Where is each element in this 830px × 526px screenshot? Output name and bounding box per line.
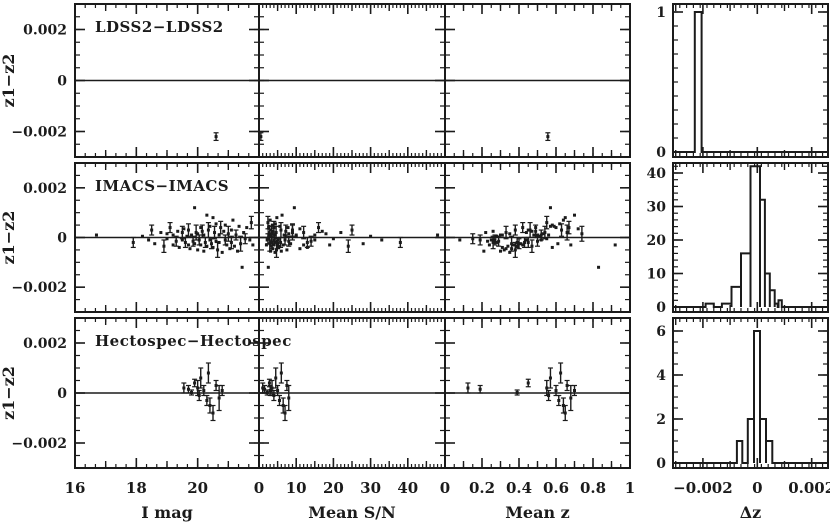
x-tick-label: 40 <box>397 479 418 497</box>
hist-y-tick-label: 30 <box>647 200 667 216</box>
data-point <box>250 221 253 224</box>
x-tick-label: 0.6 <box>543 479 569 497</box>
data-point <box>543 231 546 234</box>
data-point <box>466 387 469 390</box>
data-point <box>567 226 570 229</box>
data-point <box>521 226 524 229</box>
data-point <box>302 231 305 234</box>
hist-y-tick-label: 1 <box>656 5 666 21</box>
x-tick-label: 16 <box>65 479 86 497</box>
data-point <box>328 243 331 246</box>
data-point <box>189 247 192 250</box>
hist-y-tick-label: 4 <box>656 368 666 384</box>
data-point <box>380 238 383 241</box>
data-point <box>166 237 169 240</box>
data-point <box>313 238 316 241</box>
data-point <box>233 245 236 248</box>
data-point <box>219 226 222 229</box>
data-point <box>597 266 600 269</box>
data-point <box>566 384 569 387</box>
data-point <box>557 399 560 402</box>
data-point <box>534 226 537 229</box>
redshift-repeatability-figure: 0.0020−0.002z1−z2LDSS2−LDSS20.0020−0.002… <box>0 0 830 526</box>
data-point <box>182 387 185 390</box>
data-point <box>569 243 572 246</box>
data-point <box>569 397 572 400</box>
data-point <box>488 243 491 246</box>
data-point <box>332 237 335 240</box>
y-tick-label: −0.002 <box>11 280 67 296</box>
data-point <box>479 388 482 391</box>
hist-y-tick-label: 0 <box>656 300 666 316</box>
data-point <box>549 225 552 228</box>
y-tick-label: 0 <box>57 386 67 402</box>
data-point <box>205 245 208 248</box>
data-point <box>215 222 218 225</box>
x-axis-title: Mean S/N <box>308 503 395 522</box>
x-tick-label: 10 <box>286 479 307 497</box>
data-point <box>216 248 219 251</box>
data-point <box>235 234 238 237</box>
data-point <box>479 238 482 241</box>
data-point <box>230 241 233 244</box>
y-tick-label: 0.002 <box>23 336 67 352</box>
hist-y-tick-label: 20 <box>647 233 667 249</box>
data-point <box>267 266 270 269</box>
data-point <box>202 250 205 253</box>
data-point <box>212 246 215 249</box>
data-point <box>269 389 272 392</box>
data-point <box>556 242 559 245</box>
data-point <box>187 229 190 232</box>
data-point <box>207 372 210 375</box>
x-axis-title: Mean z <box>505 503 570 522</box>
data-point <box>295 234 298 237</box>
data-point <box>486 240 489 243</box>
x-axis-title: I mag <box>141 503 193 522</box>
data-point <box>399 241 402 244</box>
data-point <box>289 242 292 245</box>
data-point <box>558 222 561 225</box>
data-point <box>225 243 228 246</box>
data-point <box>222 230 225 233</box>
data-point <box>324 232 327 235</box>
data-point <box>159 231 162 234</box>
x-tick-label: 0 <box>254 479 264 497</box>
data-point <box>282 243 285 246</box>
y-tick-label: 0 <box>57 231 67 247</box>
y-axis-title: z1−z2 <box>0 54 18 108</box>
data-point <box>545 221 548 224</box>
data-point <box>298 227 301 230</box>
data-point <box>202 389 205 392</box>
data-point <box>239 242 242 245</box>
hist-x-tick-label: 0.002 <box>788 479 830 497</box>
data-point <box>227 232 230 235</box>
data-point <box>555 389 558 392</box>
data-point <box>508 232 511 235</box>
data-point <box>266 221 269 224</box>
hist-y-tick-label: 0 <box>656 145 666 161</box>
data-point <box>580 232 583 235</box>
data-point <box>147 238 150 241</box>
data-point <box>283 234 286 237</box>
data-point <box>153 242 156 245</box>
data-point <box>218 397 221 400</box>
data-point <box>534 230 537 233</box>
data-point <box>573 214 576 217</box>
data-point <box>193 382 196 385</box>
data-point <box>272 394 275 397</box>
y-tick-label: 0.002 <box>23 181 67 197</box>
data-point <box>284 412 287 415</box>
x-tick-label: 0 <box>440 479 450 497</box>
y-tick-label: 0 <box>57 74 67 90</box>
data-point <box>291 231 294 234</box>
data-point <box>514 229 517 232</box>
data-point <box>193 206 196 209</box>
data-point <box>505 247 508 250</box>
data-point <box>268 382 271 385</box>
data-point <box>536 240 539 243</box>
data-point <box>274 377 277 380</box>
x-tick-label: 0.8 <box>580 479 606 497</box>
data-point <box>221 389 224 392</box>
panel-title: Hectospec−Hectospec <box>95 332 292 350</box>
data-point <box>181 231 184 234</box>
data-point <box>279 229 282 232</box>
data-point <box>310 240 313 243</box>
data-point <box>204 241 207 244</box>
data-point <box>210 242 213 245</box>
data-point <box>521 243 524 246</box>
data-point <box>436 234 439 237</box>
data-point <box>287 232 290 235</box>
data-point <box>536 234 539 237</box>
data-point <box>182 227 185 230</box>
data-point <box>266 238 269 241</box>
data-point <box>199 243 202 246</box>
data-point <box>547 394 550 397</box>
data-point <box>175 240 178 243</box>
data-point <box>284 230 287 233</box>
histogram-outline <box>674 331 827 463</box>
data-point <box>501 246 504 249</box>
data-point <box>150 229 153 232</box>
y-axis-title: z1−z2 <box>0 366 18 420</box>
histogram-outline <box>674 12 827 152</box>
data-point <box>132 241 135 244</box>
y-tick-label: 0.002 <box>23 23 67 39</box>
data-point <box>187 243 190 246</box>
data-point <box>266 391 269 394</box>
data-point <box>205 399 208 402</box>
data-point <box>492 241 495 244</box>
data-point <box>298 247 301 250</box>
panel-title: IMACS−IMACS <box>95 177 229 195</box>
data-point <box>549 377 552 380</box>
data-point <box>284 238 287 241</box>
data-point <box>510 242 513 245</box>
data-point <box>546 135 549 138</box>
data-point <box>302 243 305 246</box>
data-point <box>193 242 196 245</box>
data-point <box>231 219 234 222</box>
data-point <box>198 238 201 241</box>
data-point <box>280 372 283 375</box>
data-point <box>241 266 244 269</box>
data-point <box>492 230 495 233</box>
data-point <box>275 216 278 219</box>
data-point <box>95 234 98 237</box>
data-point <box>484 231 487 234</box>
x-tick-label: 0.4 <box>506 479 532 497</box>
data-point <box>287 226 290 229</box>
x-tick-label: 0.2 <box>469 479 495 497</box>
hist-x-tick-label: −0.002 <box>673 479 733 497</box>
data-point <box>321 230 324 233</box>
data-point <box>562 219 565 222</box>
data-point <box>251 243 254 246</box>
data-point <box>505 231 508 234</box>
data-point <box>245 226 248 229</box>
data-point <box>212 412 215 415</box>
data-point <box>614 243 617 246</box>
hist-y-tick-label: 6 <box>656 324 666 340</box>
data-point <box>499 250 502 253</box>
data-point <box>248 238 251 241</box>
data-point <box>276 389 279 392</box>
x-tick-label: 30 <box>360 479 381 497</box>
hist-x-tick-label: 0 <box>752 479 762 497</box>
data-point <box>201 230 204 233</box>
data-point <box>176 230 179 233</box>
data-point <box>482 250 485 253</box>
y-axis-title: z1−z2 <box>0 211 18 265</box>
hist-x-axis-title: Δz <box>740 503 762 522</box>
data-point <box>213 231 216 234</box>
data-point <box>559 372 562 375</box>
data-point <box>208 225 211 228</box>
x-tick-label: 20 <box>323 479 344 497</box>
data-point <box>169 226 172 229</box>
histogram-outline <box>674 166 827 307</box>
data-point <box>527 382 530 385</box>
data-point <box>516 245 519 248</box>
hist-y-tick-label: 10 <box>647 267 667 283</box>
hist-y-tick-label: 40 <box>647 166 667 182</box>
data-point <box>207 229 210 232</box>
data-point <box>458 238 461 241</box>
x-tick-label: 20 <box>187 479 208 497</box>
data-point <box>549 206 552 209</box>
data-point <box>278 399 281 402</box>
data-point <box>196 248 199 251</box>
data-point <box>339 231 342 234</box>
data-point <box>317 226 320 229</box>
hist-y-tick-label: 2 <box>656 412 666 428</box>
x-tick-label: 1 <box>625 479 635 497</box>
data-point <box>525 231 528 234</box>
data-point <box>230 229 233 232</box>
data-point <box>560 229 563 232</box>
data-point <box>190 391 193 394</box>
data-point <box>199 377 202 380</box>
data-point <box>471 237 474 240</box>
data-point <box>265 243 268 246</box>
data-point <box>547 234 550 237</box>
data-point <box>202 234 205 237</box>
x-tick-label: 18 <box>126 479 147 497</box>
data-point <box>514 248 517 251</box>
data-point <box>198 394 201 397</box>
data-point <box>532 234 535 237</box>
data-point <box>162 245 165 248</box>
data-point <box>278 225 281 228</box>
data-point <box>212 216 215 219</box>
data-point <box>218 241 221 244</box>
data-point <box>181 238 184 241</box>
data-point <box>273 251 276 254</box>
y-tick-label: −0.002 <box>11 436 67 452</box>
data-point <box>516 391 519 394</box>
panel-frame <box>673 318 828 468</box>
y-tick-label: −0.002 <box>11 125 67 141</box>
data-point <box>293 206 296 209</box>
data-point <box>215 135 218 138</box>
data-point <box>205 214 208 217</box>
data-point <box>351 229 354 232</box>
hist-y-tick-label: 0 <box>656 456 666 472</box>
data-point <box>178 246 181 249</box>
data-point <box>530 230 533 233</box>
data-point <box>530 245 533 248</box>
data-point <box>564 412 567 415</box>
data-point <box>281 214 284 217</box>
data-point <box>244 237 247 240</box>
data-point <box>495 241 498 244</box>
data-point <box>259 135 262 138</box>
data-point <box>369 235 372 238</box>
data-point <box>141 235 144 238</box>
data-point <box>285 248 288 251</box>
data-point <box>287 397 290 400</box>
data-point <box>347 245 350 248</box>
data-point <box>313 234 316 237</box>
data-point <box>221 251 224 254</box>
data-point <box>362 242 365 245</box>
data-point <box>184 241 187 244</box>
data-point <box>577 227 580 230</box>
data-point <box>545 387 548 390</box>
data-point <box>238 225 241 228</box>
data-point <box>573 389 576 392</box>
data-point <box>540 234 543 237</box>
panel-frame <box>673 4 828 157</box>
panel-title: LDSS2−LDSS2 <box>95 18 224 36</box>
data-point <box>551 246 554 249</box>
data-point <box>306 241 309 244</box>
data-point <box>280 250 283 253</box>
figure-canvas: 0.0020−0.002z1−z2LDSS2−LDSS20.0020−0.002… <box>0 0 830 526</box>
